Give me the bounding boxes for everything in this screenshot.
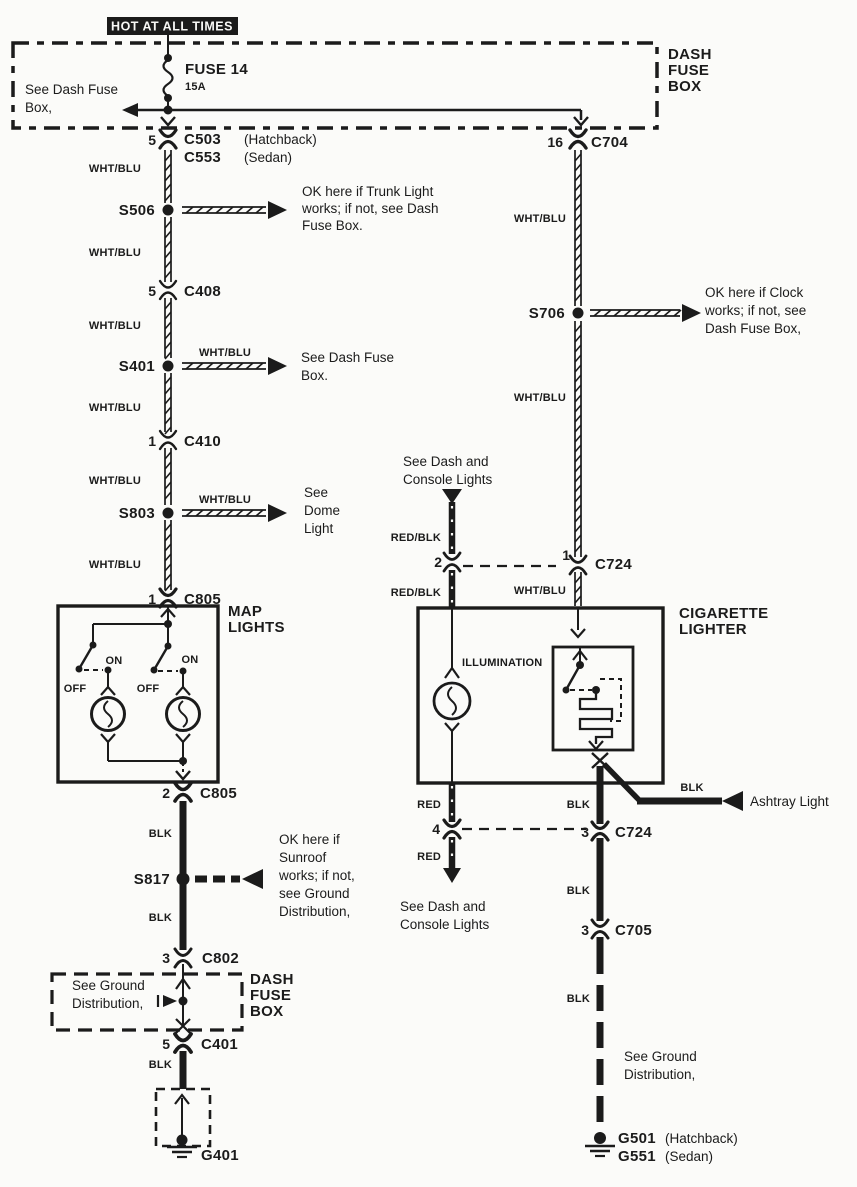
c503-name: C503 bbox=[184, 131, 221, 148]
top-box-note-1: See Dash Fuse bbox=[25, 82, 118, 97]
s817-note-4: see Ground bbox=[279, 886, 350, 901]
map-light-switch-right: ON OFF bbox=[137, 624, 199, 695]
s706-note-2: works; if not, see bbox=[704, 303, 806, 318]
c724-top-name: C724 bbox=[595, 556, 632, 573]
s506-note-1: OK here if Trunk Light bbox=[302, 184, 434, 199]
c724-bottom-name: C724 bbox=[615, 824, 652, 841]
splice-s803: WHT/BLU S803 See Dome Light bbox=[119, 485, 340, 536]
c401-pin: 5 bbox=[162, 1036, 170, 1052]
wire-color-label: WHT/BLU bbox=[89, 247, 141, 259]
c401-name: C401 bbox=[201, 1036, 238, 1053]
map-lights-title-1: MAP bbox=[228, 603, 262, 620]
wire-whtblu-right-3 bbox=[575, 572, 581, 606]
wire-color-label: WHT/BLU bbox=[89, 559, 141, 571]
s817-note-5: Distribution, bbox=[279, 904, 350, 919]
wire-color-label: WHT/BLU bbox=[514, 213, 566, 225]
s506-note-2: works; if not, see Dash bbox=[301, 201, 439, 216]
s817-id: S817 bbox=[134, 871, 170, 888]
wire-whtblu-left-6 bbox=[165, 520, 171, 591]
splice-s401: WHT/BLU S401 See Dash Fuse Box. bbox=[119, 347, 394, 383]
right-ground-note-1: See Ground bbox=[624, 1049, 697, 1064]
splice-s817: S817 OK here if Sunroof works; if not, s… bbox=[134, 832, 355, 919]
wire-whtblu-left-5 bbox=[165, 448, 171, 505]
wire-color-label: BLK bbox=[567, 993, 590, 1005]
ashtray-light-feed: BLK Ashtray Light bbox=[637, 782, 829, 811]
s401-note-1: See Dash Fuse bbox=[301, 350, 394, 365]
bottom-box-note-2: Distribution, bbox=[72, 996, 143, 1011]
dash-fuse-box-top: DASH FUSE BOX See Dash Fuse Box, bbox=[13, 43, 712, 128]
wire-whtblu-left-3 bbox=[165, 298, 171, 359]
s803-note-1: See bbox=[304, 485, 328, 500]
connector-c503: 5 C503 (Hatchback) C553 (Sedan) bbox=[148, 130, 317, 166]
wire-whtblu-right-2 bbox=[575, 321, 581, 557]
c802-name: C802 bbox=[202, 950, 239, 967]
red-output-branch: RED bbox=[417, 783, 452, 822]
s803-id: S803 bbox=[119, 505, 155, 522]
map-light-bulb-right bbox=[167, 671, 200, 761]
wire-color-label: WHT/BLU bbox=[89, 163, 141, 175]
s817-note-1: OK here if bbox=[279, 832, 340, 847]
map-light-switch-left: ON OFF bbox=[64, 624, 123, 695]
fuse-output-junction bbox=[122, 103, 588, 125]
bottom-box-title-3: BOX bbox=[250, 1003, 283, 1020]
top-box-note-2: Box, bbox=[25, 100, 52, 115]
hot-at-all-times-banner: HOT AT ALL TIMES bbox=[107, 17, 238, 35]
wire-color-label: WHT/BLU bbox=[89, 475, 141, 487]
feed-note-1: See Dash and bbox=[403, 454, 489, 469]
g501-variant: (Hatchback) bbox=[665, 1131, 738, 1146]
wire-color-label: BLK bbox=[149, 1059, 172, 1071]
c802-pin: 3 bbox=[162, 950, 170, 966]
connector-c401: 5 C401 bbox=[162, 1034, 238, 1053]
wire-color-label: BLK bbox=[567, 885, 590, 897]
dash-console-output: RED See Dash and Console Lights bbox=[400, 837, 490, 932]
connector-c704: 16 C704 bbox=[547, 130, 628, 151]
g401-name: G401 bbox=[201, 1147, 239, 1164]
connector-c408: 5 C408 bbox=[148, 281, 221, 300]
wire-color-label: BLK bbox=[680, 782, 703, 794]
bottom-box-title-2: FUSE bbox=[250, 987, 291, 1004]
connector-c802: 3 C802 bbox=[162, 949, 239, 967]
wire-whtblu-left-2 bbox=[165, 217, 171, 282]
s401-note-2: Box. bbox=[301, 368, 328, 383]
fuse-rating: 15A bbox=[185, 81, 206, 93]
s817-note-3: works; if not, bbox=[278, 868, 355, 883]
lighter-element-unit bbox=[553, 608, 633, 750]
s506-note-3: Fuse Box. bbox=[302, 218, 363, 233]
c503-pin: 5 bbox=[148, 132, 156, 148]
c724-bottom-pin-right: 3 bbox=[581, 824, 589, 840]
right-ground-path: BLK See Ground Distribution, bbox=[567, 937, 697, 1132]
c503-variant: (Hatchback) bbox=[244, 132, 317, 147]
switch-off-label: OFF bbox=[137, 683, 160, 695]
cig-title-2: LIGHTER bbox=[679, 621, 747, 638]
s817-note-2: Sunroof bbox=[279, 850, 327, 865]
s401-id: S401 bbox=[119, 358, 155, 375]
g551-name: G551 bbox=[618, 1148, 656, 1165]
s401-arrow-wire-color: WHT/BLU bbox=[199, 347, 251, 359]
wire-color-label: BLK bbox=[567, 799, 590, 811]
wire-whtblu-left-1 bbox=[165, 150, 171, 203]
s706-note-1: OK here if Clock bbox=[705, 285, 804, 300]
s803-note-3: Light bbox=[304, 521, 334, 536]
wire-color-label: RED bbox=[417, 799, 441, 811]
illumination-label: ILLUMINATION bbox=[462, 657, 542, 669]
c724-top-pin-left: 2 bbox=[434, 554, 442, 570]
c705-pin: 3 bbox=[581, 922, 589, 938]
g551-variant: (Sedan) bbox=[665, 1149, 713, 1164]
connector-c410: 1 C410 bbox=[148, 431, 221, 450]
top-box-title-3: BOX bbox=[668, 78, 701, 95]
c553-name: C553 bbox=[184, 149, 221, 166]
c705-name: C705 bbox=[615, 922, 652, 939]
ground-g401: G401 bbox=[156, 1089, 239, 1164]
map-lights-box: MAP LIGHTS ON OFF bbox=[58, 603, 285, 782]
wire-color-label: RED bbox=[417, 851, 441, 863]
connector-c724-top: 2 1 C724 bbox=[434, 547, 632, 574]
wire-color-label: WHT/BLU bbox=[514, 392, 566, 404]
cigarette-lighter-box: CIGARETTE LIGHTER ILLUMINATION bbox=[418, 605, 768, 783]
out-note-1: See Dash and bbox=[400, 899, 486, 914]
wire-color-label: WHT/BLU bbox=[89, 402, 141, 414]
connector-c724-bottom: 4 3 C724 bbox=[432, 820, 652, 841]
wire-color-label: WHT/BLU bbox=[514, 585, 566, 597]
splice-s706: S706 OK here if Clock works; if not, see… bbox=[529, 285, 807, 336]
wire-whtblu-right-1 bbox=[575, 150, 581, 306]
top-box-title-2: FUSE bbox=[668, 62, 709, 79]
c553-variant: (Sedan) bbox=[244, 150, 292, 165]
s803-note-2: Dome bbox=[304, 503, 340, 518]
c704-pin: 16 bbox=[547, 134, 563, 150]
wire-whtblu-left-4 bbox=[165, 373, 171, 434]
feed-note-2: Console Lights bbox=[403, 472, 493, 487]
c408-name: C408 bbox=[184, 283, 221, 300]
switch-on-label: ON bbox=[182, 654, 199, 666]
fuse-14: FUSE 14 15A bbox=[164, 35, 249, 110]
s803-arrow-wire-color: WHT/BLU bbox=[199, 494, 251, 506]
wiring-diagram-page: HOT AT ALL TIMES DASH FUSE BOX See Dash … bbox=[0, 0, 857, 1187]
c805-bottom-pin: 2 bbox=[162, 785, 170, 801]
c805-bottom-name: C805 bbox=[200, 785, 237, 802]
out-note-2: Console Lights bbox=[400, 917, 490, 932]
c410-pin: 1 bbox=[148, 433, 156, 449]
top-box-title-1: DASH bbox=[668, 46, 712, 63]
c724-bottom-pin-left: 4 bbox=[432, 821, 440, 837]
switch-on-label: ON bbox=[106, 655, 123, 667]
dash-fuse-box-bottom: DASH FUSE BOX See Ground Distribution, bbox=[52, 964, 294, 1033]
map-light-bulb-left bbox=[92, 670, 125, 761]
c410-name: C410 bbox=[184, 433, 221, 450]
switch-off-label: OFF bbox=[64, 683, 87, 695]
wire-color-label: WHT/BLU bbox=[89, 320, 141, 332]
map-lights-title-2: LIGHTS bbox=[228, 619, 285, 636]
connector-c705: 3 C705 bbox=[581, 920, 652, 939]
s706-note-3: Dash Fuse Box, bbox=[705, 321, 801, 336]
illumination-bulb: ILLUMINATION bbox=[434, 608, 542, 783]
s506-id: S506 bbox=[119, 202, 155, 219]
wire-color-label: RED/BLK bbox=[391, 587, 441, 599]
bottom-box-note-1: See Ground bbox=[72, 978, 145, 993]
wire-color-label: BLK bbox=[149, 828, 172, 840]
c724-top-pin-right: 1 bbox=[562, 547, 570, 563]
ashtray-light-label: Ashtray Light bbox=[750, 794, 829, 809]
right-ground-note-2: Distribution, bbox=[624, 1067, 695, 1082]
wire-color-label: RED/BLK bbox=[391, 532, 441, 544]
c704-name: C704 bbox=[591, 134, 628, 151]
g501-name: G501 bbox=[618, 1130, 656, 1147]
c408-pin: 5 bbox=[148, 283, 156, 299]
dash-console-feed: See Dash and Console Lights RED/BLK bbox=[391, 454, 493, 554]
connector-c805-bottom: 2 C805 bbox=[162, 783, 237, 802]
cig-title-1: CIGARETTE bbox=[679, 605, 768, 622]
fuse-name: FUSE 14 bbox=[185, 61, 248, 78]
wire-color-label: BLK bbox=[149, 912, 172, 924]
s706-id: S706 bbox=[529, 305, 565, 322]
ground-g501-g551: G501 (Hatchback) G551 (Sedan) bbox=[585, 1130, 738, 1165]
banner-label: HOT AT ALL TIMES bbox=[111, 20, 233, 34]
bottom-box-title-1: DASH bbox=[250, 971, 294, 988]
